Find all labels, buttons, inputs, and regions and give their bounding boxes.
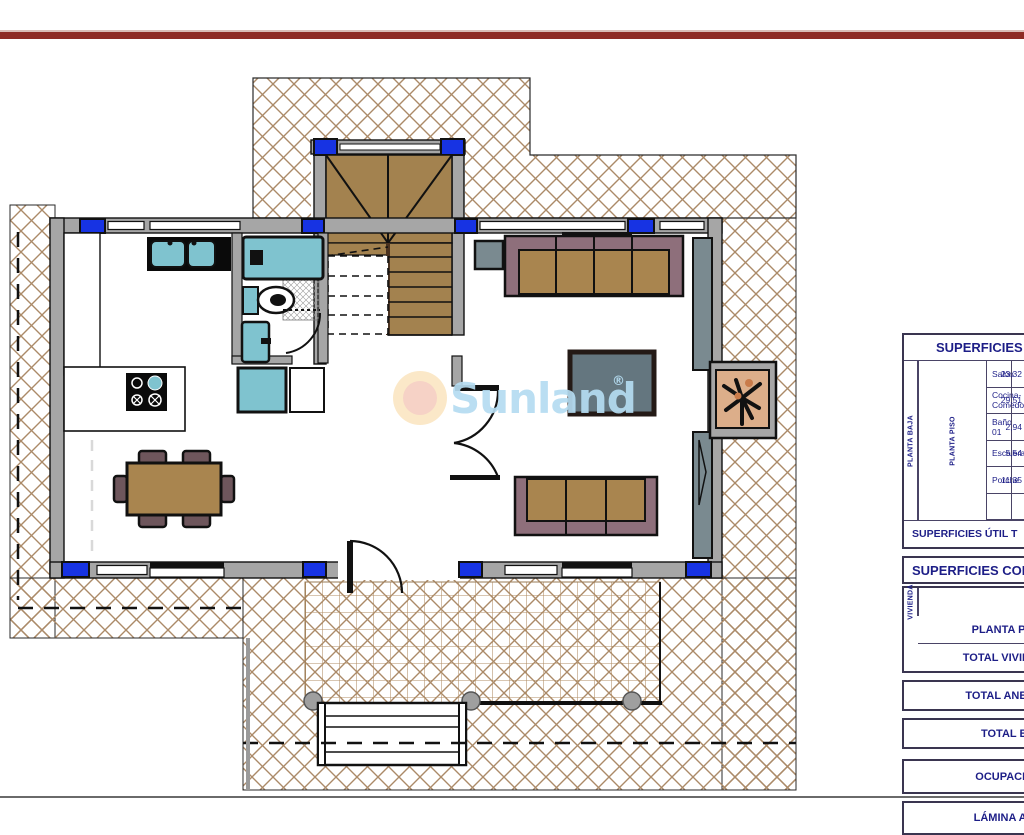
side-table	[475, 241, 503, 269]
table-gap	[902, 749, 1024, 759]
bathtub-faucet	[250, 250, 263, 265]
fridge	[238, 368, 324, 412]
construidas-header: SUPERFICIES CON	[904, 558, 1024, 582]
porch-column	[623, 692, 641, 710]
planta-baja-vertical-label: PLANTA BAJA	[904, 361, 918, 520]
staircase	[311, 139, 465, 364]
wall	[50, 218, 64, 578]
dining-area	[114, 451, 234, 527]
superficies-construidas-table: SUPERFICIES CON VIVIENDA PLANTA BAJA PLA…	[902, 556, 1024, 835]
vivienda-vertical-label: VIVIENDA	[904, 588, 918, 616]
room-area: 5,54	[1011, 441, 1024, 468]
porch-steps	[318, 703, 466, 765]
room-area: 2,94	[1011, 414, 1024, 441]
construidas-row: TOTAL ANEXO	[904, 682, 1024, 709]
room-area: 29,51	[1011, 388, 1024, 415]
tv-unit	[693, 238, 712, 370]
watermark-text: Sunland	[450, 374, 636, 423]
construidas-row: PLANTA PISO	[918, 616, 1024, 644]
table-gap	[902, 711, 1024, 718]
table-cell	[918, 588, 1024, 616]
screenshot-root: { "page": { "top_bar_color": "#8e2b25", …	[0, 0, 1024, 800]
dining-table	[127, 463, 221, 515]
kitchen-counter	[64, 233, 100, 375]
room-label	[987, 494, 1011, 521]
toilet	[243, 287, 294, 314]
lamina-agua-block: LÁMINA AGUA PISCIN	[902, 801, 1024, 835]
construidas-row: OCUPACIÓN EDIFICA	[904, 761, 1024, 792]
construidas-row: TOTAL VIVIENDA	[918, 644, 1024, 671]
construidas-header-block: SUPERFICIES CON	[902, 556, 1024, 584]
kitchen-sink	[147, 237, 231, 271]
room-area: 23,32	[1011, 361, 1024, 388]
room-area: 11,35	[1011, 467, 1024, 494]
fireplace-planter	[710, 362, 776, 438]
cabinet	[693, 432, 712, 558]
wall	[452, 154, 464, 335]
watermark-logo-inner	[403, 381, 437, 415]
structural-column	[441, 139, 464, 155]
wall	[232, 233, 242, 363]
washbasin	[242, 322, 271, 362]
superficies-util-total-label: SUPERFICIES ÚTIL T	[904, 520, 1024, 547]
total-edificacion-block: TOTAL EDIFICACIÓ	[902, 718, 1024, 749]
total-anexo-block: TOTAL ANEXO	[902, 680, 1024, 711]
drawing-frame-bottom	[0, 796, 1024, 798]
structural-column	[314, 139, 337, 155]
kitchen-island	[64, 367, 185, 431]
stove	[126, 373, 167, 411]
planta-piso-vertical-label: PLANTA PISO	[918, 361, 987, 520]
watermark: Sunland ®	[393, 371, 636, 425]
room-area	[1011, 494, 1024, 521]
construidas-row: LÁMINA AGUA PISCIN	[904, 803, 1024, 833]
superficies-utiles-header: SUPERFICIES	[904, 335, 1024, 361]
table-gap	[902, 673, 1024, 680]
window	[340, 144, 440, 150]
construidas-row: TOTAL EDIFICACIÓ	[904, 720, 1024, 747]
porch-tiles	[305, 582, 660, 703]
vivienda-group: VIVIENDA PLANTA BAJA PLANTA PISO TOTAL V…	[902, 586, 1024, 673]
sofa-small	[515, 477, 657, 535]
floor-plan: Sunland ®	[0, 0, 900, 800]
sofa-large	[505, 236, 683, 296]
ocupacion-block: OCUPACIÓN EDIFICA	[902, 759, 1024, 794]
superficies-utiles-table: SUPERFICIES PLANTA BAJA Salón 23,32 PLAN…	[902, 333, 1024, 549]
watermark-registered: ®	[612, 374, 625, 389]
